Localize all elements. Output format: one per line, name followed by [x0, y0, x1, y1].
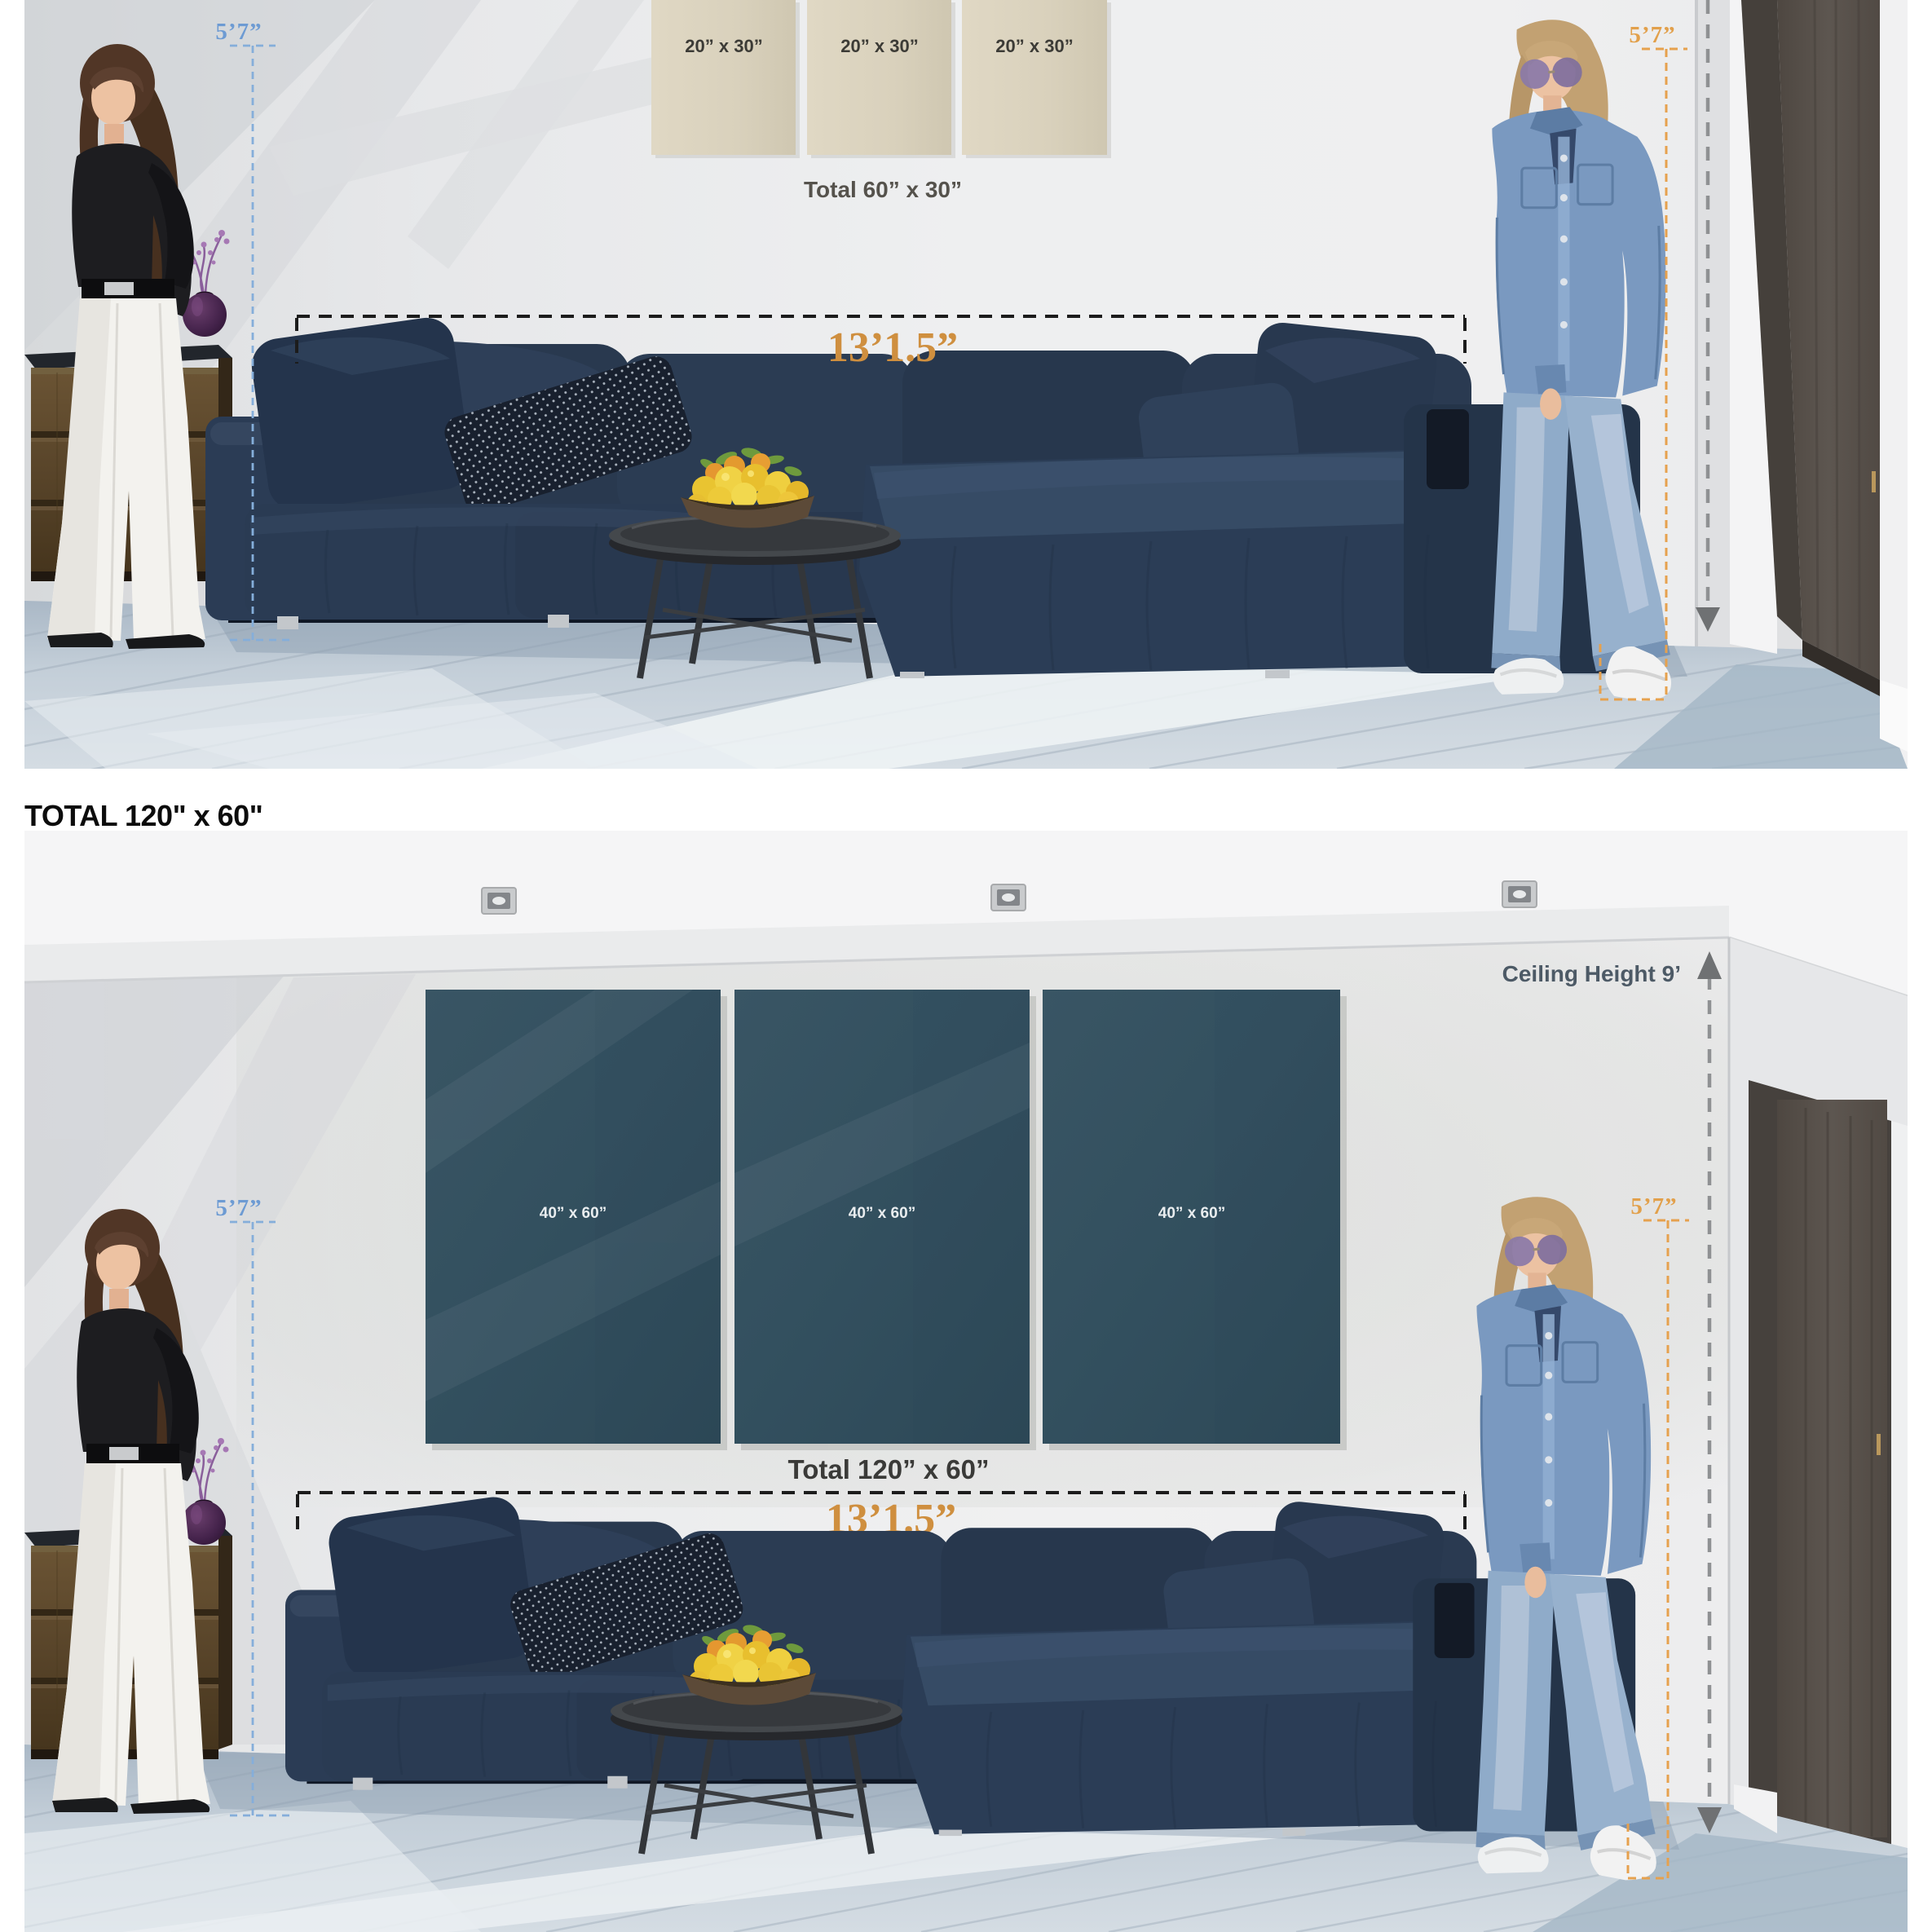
svg-text:Total 60” x 30”: Total 60” x 30” — [804, 177, 962, 202]
svg-text:20” x 30”: 20” x 30” — [840, 36, 918, 56]
svg-text:5’7”: 5’7” — [215, 19, 262, 45]
svg-text:Ceiling Height 9’: Ceiling Height 9’ — [1502, 961, 1681, 986]
svg-text:13’1.5”: 13’1.5” — [827, 324, 958, 371]
svg-text:5’7”: 5’7” — [215, 1195, 262, 1221]
svg-text:40” x 60”: 40” x 60” — [540, 1205, 607, 1222]
svg-text:20” x 30”: 20” x 30” — [995, 36, 1073, 56]
svg-text:5’7”: 5’7” — [1629, 22, 1675, 48]
svg-text:5’7”: 5’7” — [1630, 1193, 1677, 1220]
svg-text:40” x 60”: 40” x 60” — [849, 1205, 915, 1222]
svg-text:Total 120” x 60”: Total 120” x 60” — [787, 1454, 989, 1484]
svg-text:20” x 30”: 20” x 30” — [685, 36, 762, 56]
svg-text:40” x 60”: 40” x 60” — [1158, 1205, 1225, 1222]
